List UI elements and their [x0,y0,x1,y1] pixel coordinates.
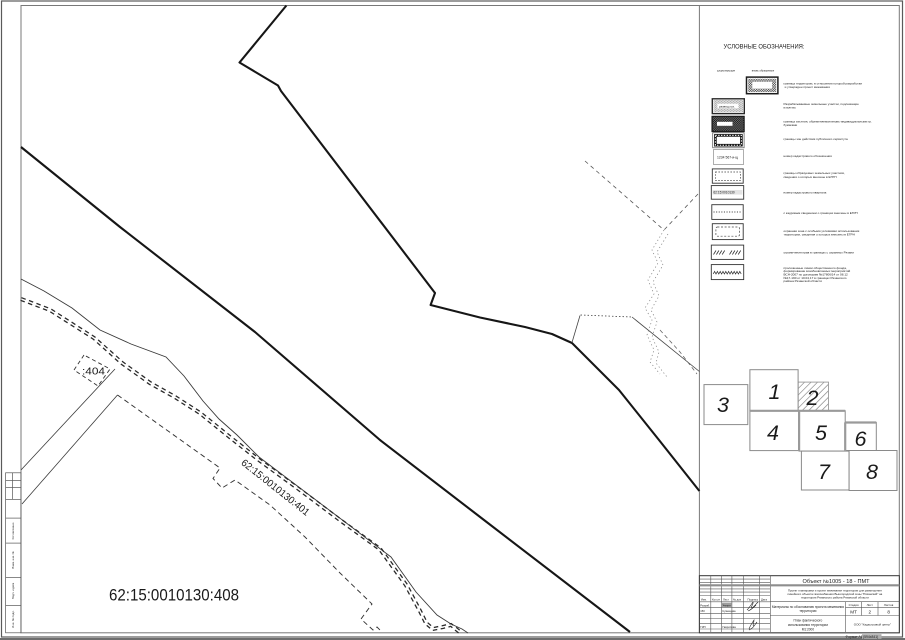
svg-text:развед.хоз.: развед.хоз. [719,104,735,108]
svg-text:Подп. и дата: Подп. и дата [11,582,15,599]
svg-text:Изм.: Изм. [701,597,707,601]
svg-text:номер кадастрового квартала: номер кадастрового квартала [784,190,827,194]
svg-text:МТ: МТ [850,609,857,614]
svg-text:Формат А1: Формат А1 [846,635,863,639]
svg-text:бумагами: бумагами [784,123,798,127]
svg-text:3: 3 [717,393,729,417]
svg-text:ООО "Кадастровый центр": ООО "Кадастровый центр" [854,622,891,626]
svg-text:4: 4 [767,421,779,445]
svg-text:№ док: № док [733,598,742,601]
svg-text:существующие: существующие [717,70,736,73]
svg-text:территории, сведения о которых: территории, сведения о которых внесены в… [784,233,855,237]
svg-text:Лист: Лист [867,603,874,607]
svg-text:62:15:0010130: 62:15:0010130 [713,191,734,195]
svg-text:номер кадастрового обозначения: номер кадастрового обозначения [784,154,833,158]
svg-text:сведения о которых внесены в Е: сведения о которых внесены в ЕГРН [784,175,837,179]
svg-text:2: 2 [869,609,872,614]
svg-text:и утвержден проект межевания: и утвержден проект межевания [785,85,831,89]
svg-text:5: 5 [815,421,828,445]
svg-text:Листов: Листов [884,603,894,607]
svg-text:Взам. инв. №: Взам. инв. № [11,551,15,568]
svg-text::404: :404 [82,366,105,378]
svg-text:территории: территории [799,609,816,613]
svg-text:2: 2 [806,386,819,410]
svg-text:УСЛОВНЫЕ ОБОЗНАЧЕНИЯ:: УСЛОВНЫЕ ОБОЗНАЧЕНИЯ: [724,44,805,51]
svg-text:Инв. № подл.: Инв. № подл. [11,610,15,628]
svg-text:150: 150 [700,609,705,613]
svg-text:Разраб.: Разраб. [700,603,710,607]
svg-text:территории Рязанского района Р: территории Рязанского района Рязанской о… [801,595,869,599]
svg-text:Согласовано: Согласовано [11,522,15,539]
svg-text:Хмара: Хмара [723,603,732,607]
svg-text:Кол.уч: Кол.уч [712,597,721,601]
svg-text:Стадия: Стадия [849,603,859,607]
svg-text:План фактического: План фактического [794,618,823,622]
svg-text:Подпись: Подпись [748,597,759,601]
svg-text:(594x841): (594x841) [863,635,878,639]
svg-text:ГИП: ГИП [700,625,705,629]
svg-text:Лист: Лист [723,597,730,601]
svg-text:Объект №1005 - 18 - ПМТ: Объект №1005 - 18 - ПМТ [803,579,870,585]
svg-text:1234 567-и-щ: 1234 567-и-щ [717,155,738,159]
svg-text:вновь образуемые: вновь образуемые [752,69,775,73]
svg-text:изъятию: изъятию [784,106,797,110]
svg-text:6: 6 [855,427,867,451]
svg-text:Дата: Дата [761,597,767,601]
svg-text:района Рязанской области: района Рязанской области [784,279,823,283]
svg-text:Материалы по обоснованию проек: Материалы по обоснованию проекта межеван… [772,605,844,609]
svg-text:8: 8 [866,460,878,484]
svg-text:с кадровым сведением о граница: с кадровым сведением о границах внесены … [784,211,858,215]
svg-text:1: 1 [769,380,781,404]
svg-text:7: 7 [818,460,831,484]
svg-text:использования территории: использования территории [788,623,828,627]
svg-text:ограничения прав в границах с: ограничения прав в границах с охранных Р… [784,250,855,254]
svg-text:Гаврилова: Гаврилова [723,625,737,629]
svg-text:М1:2000: М1:2000 [802,627,815,631]
svg-text:границы зон действия публичног: границы зон действия публичного сервитут… [784,137,849,141]
svg-text:62:15:0010130:408: 62:15:0010130:408 [109,586,239,605]
svg-text:8: 8 [887,609,890,614]
svg-text:Кузнецова: Кузнецова [723,609,737,613]
